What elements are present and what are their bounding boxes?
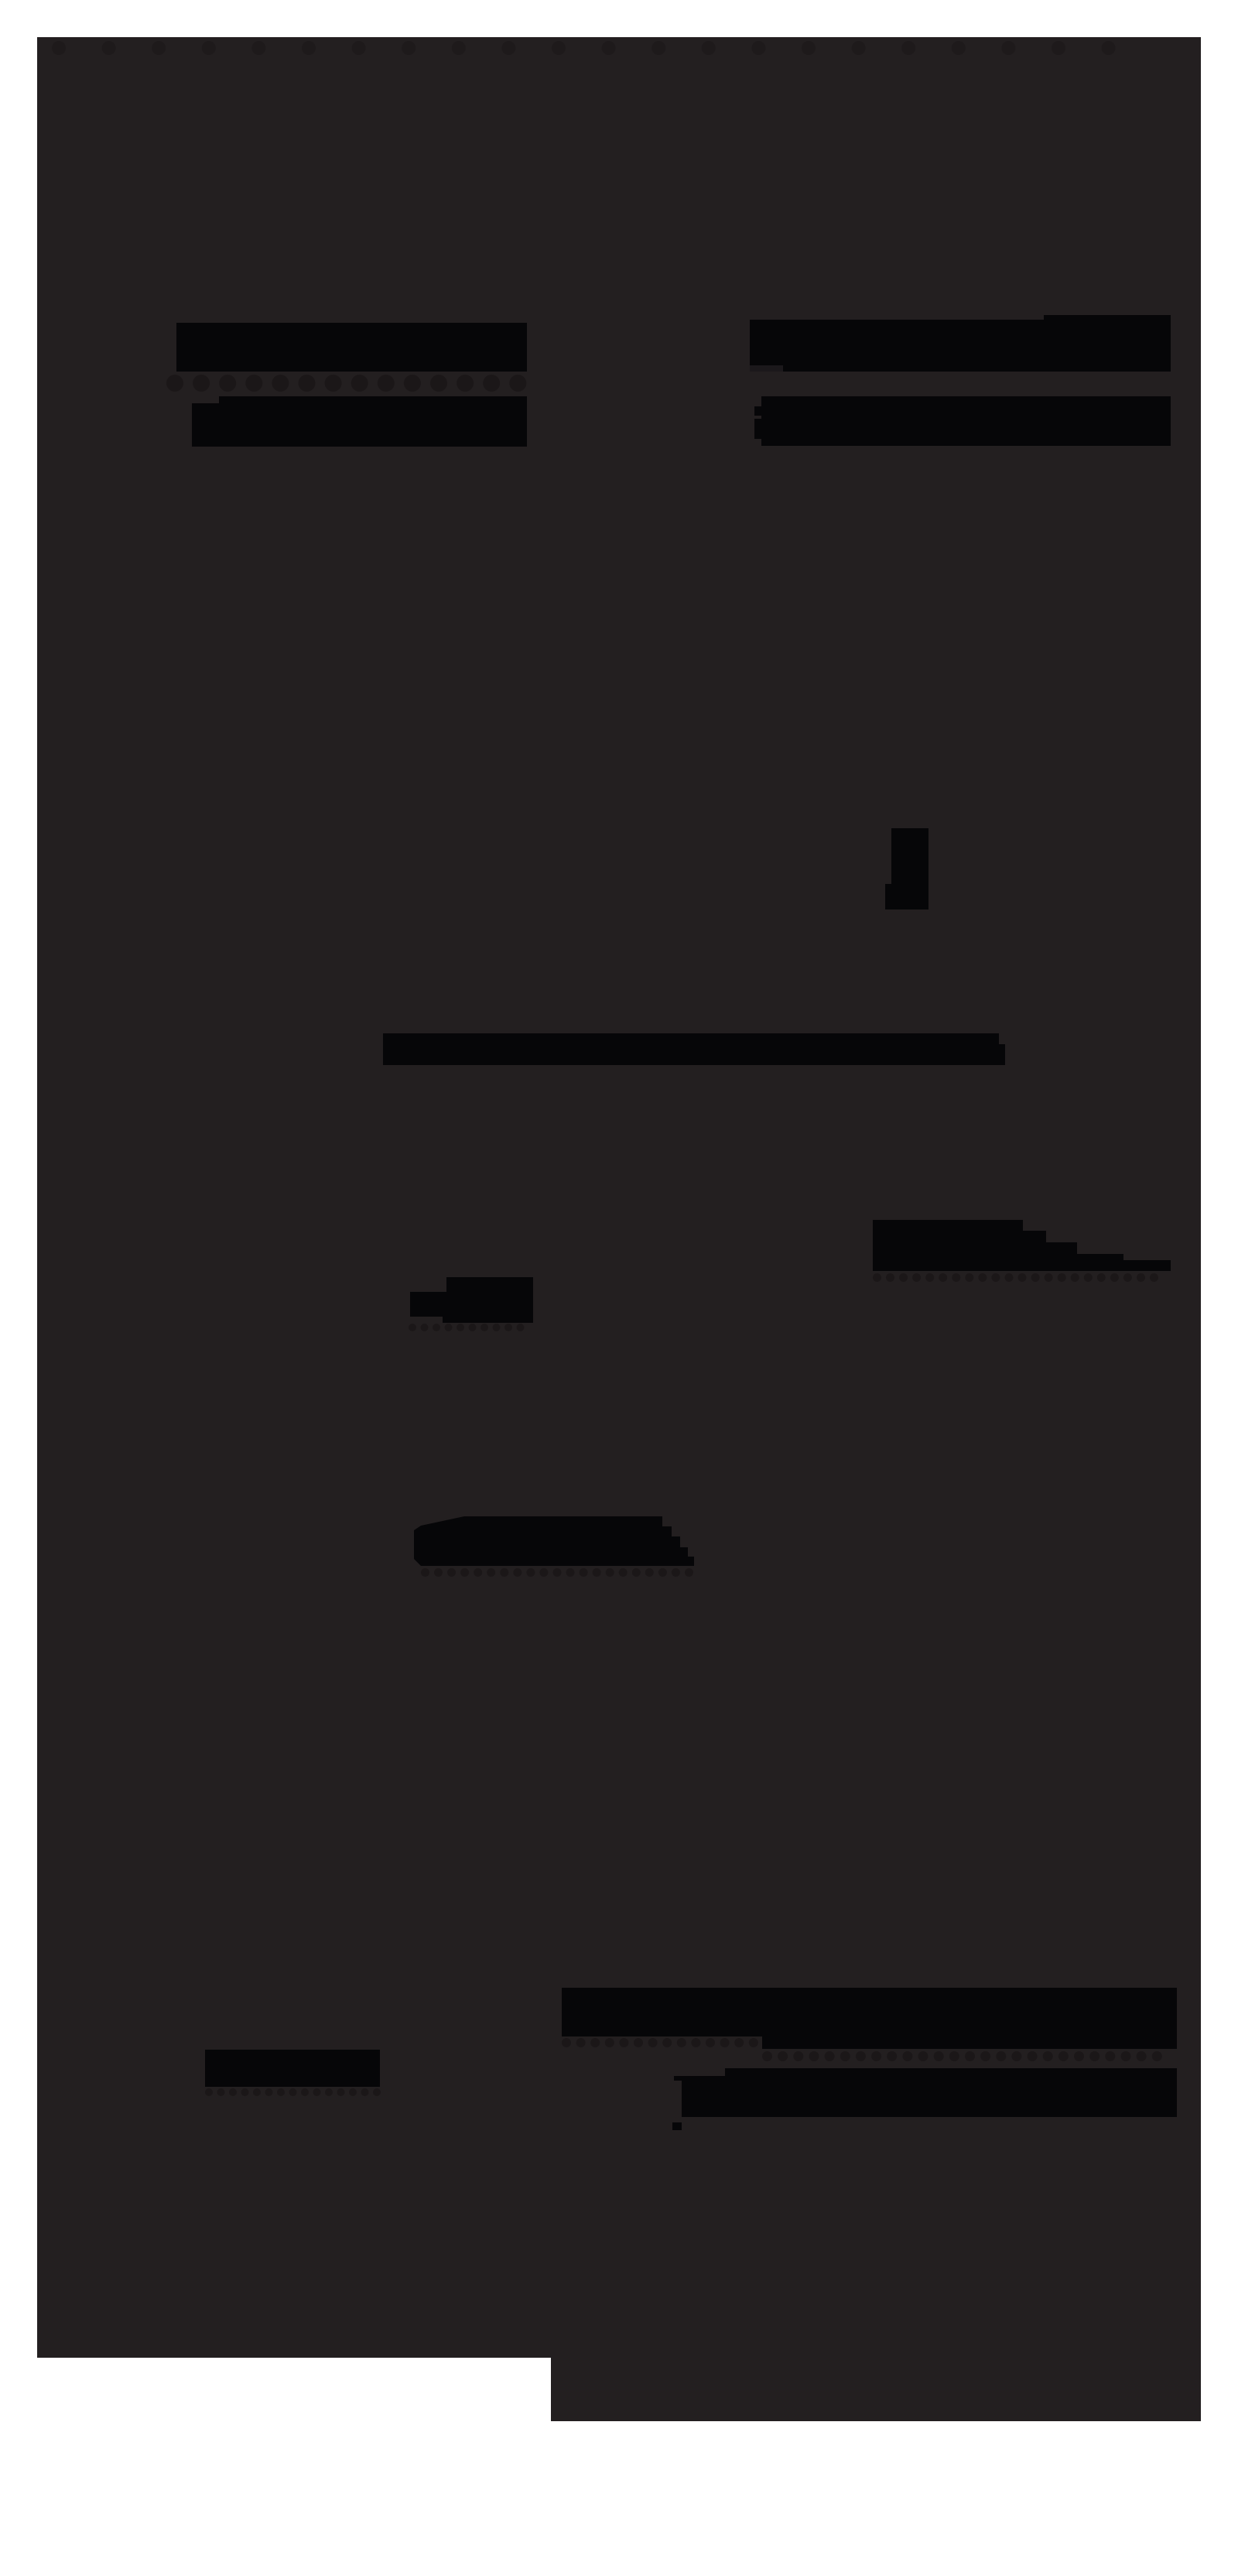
ghost-under-wedge-left (553, 1568, 562, 1577)
ink-blob-heading-line-left-2 (192, 396, 527, 447)
ghost-under-heading-left-1 (483, 375, 500, 392)
ghost-under-text-bar-1-right (1089, 2051, 1099, 2061)
ghost-under-wedge-right (925, 1273, 934, 1282)
ghost-under-text-bar-1-left (648, 2038, 658, 2047)
ink-blob-heading-line-right-1 (750, 315, 1171, 372)
ghost-under-heading-left-1 (193, 375, 210, 392)
ghost-under-wedge-right (978, 1273, 987, 1282)
ghost-under-wedge-right (1150, 1273, 1158, 1282)
ghost-under-wedge-left (513, 1568, 522, 1577)
ghost-under-wedge-left (672, 1568, 680, 1577)
ghost-under-heading-left-1 (219, 375, 236, 392)
ink-blob-heading-right-nub-a (754, 406, 761, 416)
ghost-under-text-bar-1-right (1074, 2051, 1084, 2061)
ghost-under-text-bar-1-left (706, 2038, 715, 2047)
ghost-under-wedge-right (873, 1273, 881, 1282)
perforation-dot (602, 41, 616, 55)
ghost-under-wedge-left (566, 1568, 575, 1577)
ghost-under-text-bar-1-right (1121, 2051, 1131, 2061)
perforation-dot (302, 41, 316, 55)
ghost-under-wedge-left (434, 1568, 443, 1577)
ghost-under-word-block (493, 1324, 501, 1331)
ghost-under-word-block (480, 1324, 488, 1331)
scan-canvas (0, 0, 1238, 2576)
ghost-under-word-block (445, 1324, 453, 1331)
ghost-under-text-bar-1-left (634, 2038, 643, 2047)
ghost-under-wedge-left (606, 1568, 614, 1577)
perforation-dot (251, 41, 265, 55)
ink-blob-word-block-bottom (443, 1317, 533, 1323)
perforation-dot (651, 41, 665, 55)
ghost-under-text-bar-1-right (902, 2051, 912, 2061)
ghost-under-wedge-left (474, 1568, 482, 1577)
ghost-under-word-block-2 (313, 2088, 321, 2096)
ink-blob-speck (672, 2122, 682, 2130)
ghost-under-text-bar-1-right (871, 2051, 881, 2061)
ghost-under-word-block-2 (301, 2088, 309, 2096)
ghost-under-wedge-right (899, 1273, 908, 1282)
ghost-under-text-bar-1-right (762, 2051, 772, 2061)
ghost-under-heading-left-1 (166, 375, 183, 392)
ghost-under-wedge-right (1058, 1273, 1066, 1282)
ghost-under-wedge-left (685, 1568, 693, 1577)
perforation-dot (802, 41, 816, 55)
ghost-under-wedge-right (991, 1273, 1000, 1282)
ghost-under-heading-left-1 (299, 375, 316, 392)
ghost-under-text-bar-1-right (1058, 2051, 1069, 2061)
ghost-under-word-block (421, 1324, 429, 1331)
ghost-under-word-block-2 (217, 2088, 225, 2096)
ghost-under-word-block-2 (241, 2088, 249, 2096)
ghost-under-wedge-left (580, 1568, 588, 1577)
ghost-under-text-bar-1-right (840, 2051, 850, 2061)
ghost-under-wedge-right (1045, 1273, 1053, 1282)
ghost-under-text-bar-1-right (918, 2051, 929, 2061)
ghost-under-wedge-left (619, 1568, 628, 1577)
perforation-dot (452, 41, 466, 55)
perforation-dot (202, 41, 216, 55)
ghost-under-heading-left-1 (404, 375, 421, 392)
ghost-under-text-bar-1-right (856, 2051, 866, 2061)
ghost-under-text-bar-1-left (691, 2038, 700, 2047)
ghost-under-wedge-left (421, 1568, 429, 1577)
ghost-under-heading-left-1 (457, 375, 474, 392)
perforation-dot (102, 41, 116, 55)
ghost-under-text-bar-1-right (793, 2051, 803, 2061)
perforation-dot (501, 41, 515, 55)
ink-blob-text-bar-2 (674, 2068, 1177, 2117)
ghost-under-text-bar-1-right (996, 2051, 1006, 2061)
ghost-under-word-block-2 (373, 2088, 381, 2096)
ghost-under-text-bar-1-left (619, 2038, 628, 2047)
ghost-under-text-bar-1-left (720, 2038, 730, 2047)
ink-blob-rule-line-nub (999, 1044, 1005, 1065)
ghost-under-text-bar-1-left (605, 2038, 614, 2047)
ghost-under-word-block-2 (349, 2088, 357, 2096)
ink-blob-figure-block (891, 828, 929, 909)
ghost-under-text-bar-1-right (1137, 2051, 1147, 2061)
ghost-under-wedge-right (952, 1273, 960, 1282)
ghost-under-word-block-2 (205, 2088, 213, 2096)
perforation-dot (702, 41, 716, 55)
ghost-under-heading-left-1 (509, 375, 526, 392)
ghost-under-wedge-left (645, 1568, 654, 1577)
ghost-under-word-block (504, 1324, 512, 1331)
ghost-under-word-block (517, 1324, 525, 1331)
ghost-under-word-block (457, 1324, 464, 1331)
ghost-under-wedge-right (1123, 1273, 1132, 1282)
perforation-dot (402, 41, 416, 55)
ghost-under-word-block-2 (265, 2088, 273, 2096)
ghost-under-wedge-right (1110, 1273, 1119, 1282)
perforation-dot (1052, 41, 1065, 55)
ink-blob-wedge-left (414, 1516, 694, 1566)
ghost-under-wedge-right (939, 1273, 947, 1282)
ghost-under-text-bar-1-right (1105, 2051, 1115, 2061)
ghost-under-text-bar-1-right (949, 2051, 959, 2061)
ghost-under-word-block (469, 1324, 477, 1331)
ink-blob-word-block-2 (205, 2050, 380, 2087)
ghost-under-text-bar-1-right (965, 2051, 975, 2061)
ghost-under-text-bar-1-right (934, 2051, 944, 2061)
perforation-dot (852, 41, 866, 55)
ghost-under-wedge-right (1018, 1273, 1027, 1282)
ghost-under-wedge-left (593, 1568, 601, 1577)
ghost-under-text-bar-1-left (562, 2038, 571, 2047)
perforation-dot (1001, 41, 1015, 55)
ghost-under-heading-left-1 (245, 375, 262, 392)
ghost-under-text-bar-1-right (1028, 2051, 1038, 2061)
ink-blob-word-block-mid (410, 1292, 533, 1317)
ghost-under-wedge-right (965, 1273, 973, 1282)
ghost-under-text-bar-1-right (1152, 2051, 1162, 2061)
perforation-dot (751, 41, 765, 55)
perforation-dot (352, 41, 366, 55)
ghost-under-text-bar-1-right (980, 2051, 990, 2061)
ghost-under-heading-left-1 (351, 375, 368, 392)
scanned-page (0, 0, 1238, 2576)
ghost-under-word-block-2 (253, 2088, 261, 2096)
ghost-under-wedge-left (500, 1568, 508, 1577)
ghost-under-wedge-left (658, 1568, 667, 1577)
ghost-under-word-block-2 (361, 2088, 369, 2096)
ghost-under-heading-left-1 (325, 375, 342, 392)
ghost-under-wedge-left (632, 1568, 641, 1577)
ghost-under-text-bar-1-right (778, 2051, 788, 2061)
ghost-under-word-block-2 (277, 2088, 285, 2096)
ghost-under-wedge-left (447, 1568, 456, 1577)
ghost-under-word-block-2 (229, 2088, 237, 2096)
ghost-under-wedge-right (886, 1273, 894, 1282)
ink-blob-rule-line (383, 1033, 999, 1065)
ghost-under-text-bar-1-left (590, 2038, 600, 2047)
ink-blob-figure-block-foot (885, 884, 891, 909)
ghost-under-text-bar-1-left (734, 2038, 744, 2047)
ghost-under-heading-left-1 (378, 375, 395, 392)
ghost-under-wedge-right (1031, 1273, 1040, 1282)
ghost-under-text-bar-1-right (1043, 2051, 1053, 2061)
ghost-under-heading-left-1 (430, 375, 447, 392)
ghost-under-text-bar-1-right (825, 2051, 835, 2061)
ghost-under-wedge-left (526, 1568, 535, 1577)
ghost-under-wedge-left (487, 1568, 495, 1577)
perforation-dot (901, 41, 915, 55)
ghost-under-word-block (409, 1324, 416, 1331)
ghost-under-wedge-right (1084, 1273, 1093, 1282)
ghost-under-wedge-right (1071, 1273, 1079, 1282)
ghost-under-heading-left-1 (272, 375, 289, 392)
perforation-dot (152, 41, 166, 55)
ghost-under-wedge-right (1005, 1273, 1014, 1282)
patch-lighter-notch-heading-right-1 (750, 365, 783, 372)
ghost-under-wedge-left (460, 1568, 469, 1577)
ink-blob-heading-right-nub-b (754, 419, 761, 439)
ghost-under-word-block-2 (289, 2088, 297, 2096)
perforation-dot (1102, 41, 1116, 55)
ink-blob-heading-line-right-2 (761, 396, 1171, 446)
ghost-under-word-block (433, 1324, 440, 1331)
ghost-under-text-bar-1-right (1011, 2051, 1021, 2061)
perforation-dot (52, 41, 66, 55)
ghost-under-text-bar-1-left (677, 2038, 686, 2047)
ghost-under-wedge-left (539, 1568, 548, 1577)
perforation-dot (952, 41, 966, 55)
ghost-under-wedge-right (1137, 1273, 1145, 1282)
ghost-under-text-bar-1-left (576, 2038, 586, 2047)
perforation-dot (552, 41, 566, 55)
ghost-under-word-block-2 (337, 2088, 345, 2096)
ghost-under-wedge-right (912, 1273, 921, 1282)
ghost-under-text-bar-1-right (887, 2051, 897, 2061)
ink-blob-word-block-top (446, 1277, 533, 1292)
ink-blob-heading-line-left-1 (176, 323, 527, 372)
ghost-under-text-bar-1-right (809, 2051, 819, 2061)
ghost-under-text-bar-1-left (662, 2038, 672, 2047)
ghost-under-text-bar-1-left (749, 2038, 758, 2047)
ghost-under-wedge-right (1097, 1273, 1106, 1282)
ghost-under-word-block-2 (325, 2088, 333, 2096)
